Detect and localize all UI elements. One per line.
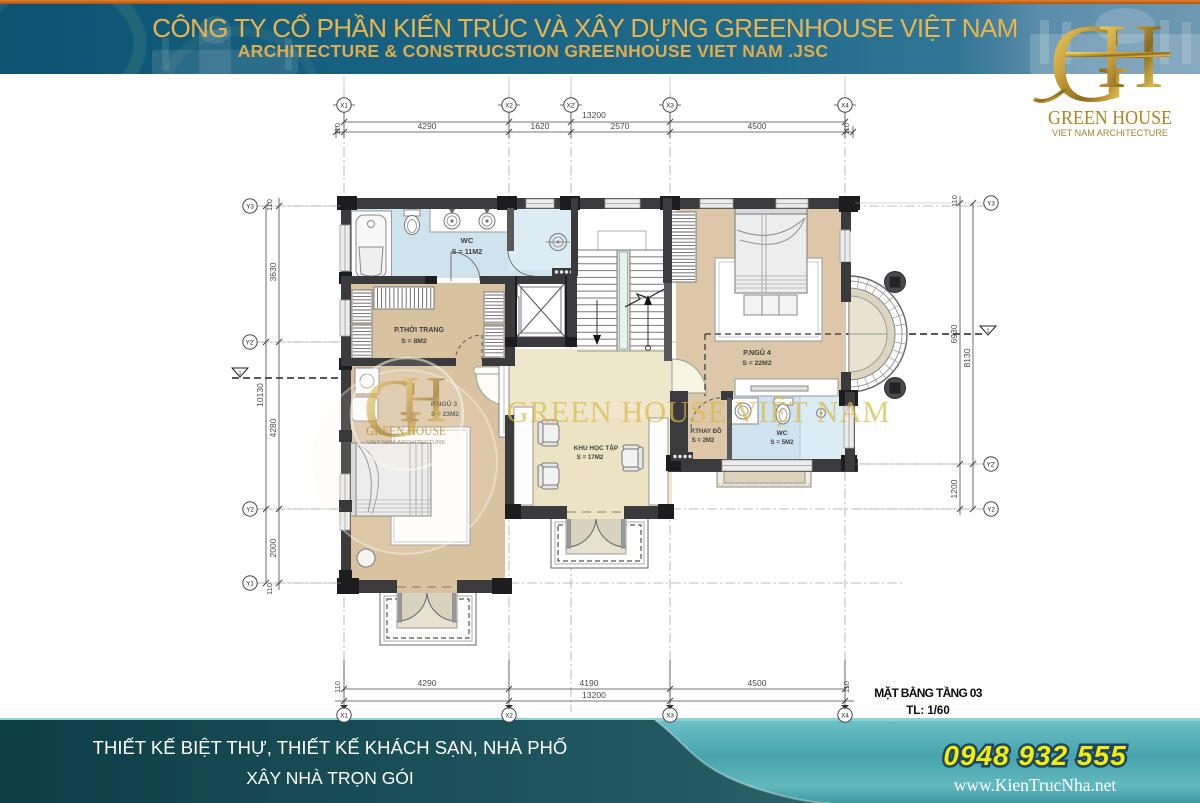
svg-text:4290: 4290 [418, 121, 437, 131]
svg-text:110: 110 [842, 123, 851, 135]
svg-text:4290: 4290 [418, 678, 437, 688]
svg-text:110: 110 [265, 199, 274, 211]
svg-text:13200: 13200 [582, 110, 606, 120]
svg-text:4500: 4500 [748, 678, 767, 688]
svg-text:3630: 3630 [268, 262, 278, 281]
svg-text:S = 17M2: S = 17M2 [577, 454, 604, 461]
svg-text:110: 110 [950, 195, 959, 207]
svg-text:2570: 2570 [611, 121, 630, 131]
svg-text:X3: X3 [666, 712, 674, 719]
svg-text:110: 110 [333, 123, 342, 135]
svg-text:S = 2M2: S = 2M2 [692, 438, 715, 444]
svg-text:X4: X4 [841, 712, 849, 719]
svg-text:KHU HỌC TẬP: KHU HỌC TẬP [574, 443, 619, 452]
svg-text:S = 8M2: S = 8M2 [401, 338, 427, 345]
svg-text:X3: X3 [666, 102, 674, 109]
svg-text:4280: 4280 [268, 418, 278, 437]
svg-text:GREEN HOUSE: GREEN HOUSE [366, 424, 446, 438]
svg-text:110: 110 [265, 583, 274, 595]
svg-text:P.THỜI TRANG: P.THỜI TRANG [394, 325, 444, 334]
svg-text:P.NGỦ 4: P.NGỦ 4 [743, 348, 771, 357]
svg-text:S = 11M2: S = 11M2 [452, 247, 483, 256]
svg-text:1: 1 [987, 329, 990, 335]
svg-text:X2: X2 [505, 712, 513, 719]
svg-text:MẶT BẰNG TẦNG 03: MẶT BẰNG TẦNG 03 [874, 685, 982, 700]
svg-text:Y3: Y3 [246, 203, 254, 210]
svg-text:10130: 10130 [255, 383, 265, 407]
svg-text:Y2: Y2 [987, 506, 995, 513]
svg-text:GREEN HOUSE VIỆT NAM: GREEN HOUSE VIỆT NAM [507, 394, 890, 429]
svg-text:X1: X1 [340, 712, 348, 719]
svg-text:WC: WC [777, 430, 788, 437]
svg-text:Y2': Y2' [987, 461, 996, 468]
svg-text:Y2: Y2 [246, 506, 254, 513]
svg-text:6930: 6930 [949, 324, 959, 343]
svg-text:S = 22M2: S = 22M2 [742, 360, 772, 367]
svg-text:VIET NAM ARCHITECTURE: VIET NAM ARCHITECTURE [367, 440, 446, 446]
svg-text:1620: 1620 [531, 121, 550, 131]
svg-text:Y1: Y1 [246, 580, 254, 587]
svg-text:1: 1 [239, 371, 242, 377]
svg-text:X2': X2' [567, 102, 576, 109]
svg-text:VIET NAM ARCHITECTURE: VIET NAM ARCHITECTURE [1052, 128, 1168, 139]
svg-text:Y2': Y2' [246, 339, 255, 346]
svg-text:Y3: Y3 [987, 200, 995, 207]
svg-text:13200: 13200 [582, 690, 606, 700]
svg-text:2000: 2000 [268, 538, 278, 557]
svg-text:X2: X2 [505, 102, 513, 109]
svg-text:TL: 1/60: TL: 1/60 [906, 705, 949, 717]
svg-text:S = 5M2: S = 5M2 [770, 439, 794, 446]
svg-text:110: 110 [842, 681, 851, 693]
svg-text:4500: 4500 [748, 121, 767, 131]
svg-text:P.THAY ĐỒ: P.THAY ĐỒ [690, 428, 722, 435]
svg-text:GREEN HOUSE: GREEN HOUSE [1048, 108, 1172, 129]
svg-text:8130: 8130 [962, 348, 972, 367]
svg-text:X1: X1 [340, 102, 348, 109]
svg-text:X4: X4 [841, 102, 849, 109]
svg-text:110: 110 [333, 681, 342, 693]
svg-text:1200: 1200 [949, 479, 959, 498]
svg-text:4190: 4190 [580, 678, 599, 688]
svg-text:WC: WC [461, 236, 474, 245]
